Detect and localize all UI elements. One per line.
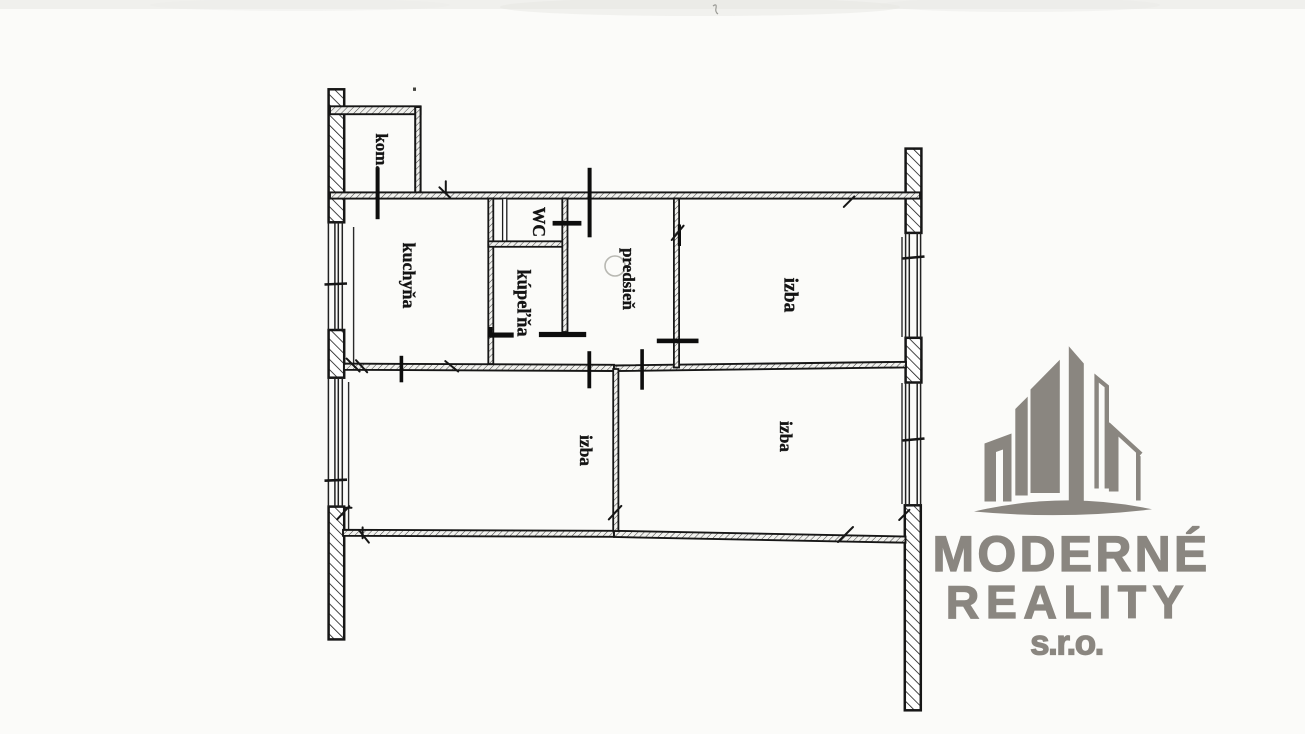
svg-text:kuchyňa: kuchyňa [399, 242, 419, 308]
svg-text:predsieň: predsieň [619, 248, 638, 311]
svg-text:s.r.o.: s.r.o. [1030, 624, 1103, 663]
svg-text:kom.: kom. [372, 133, 391, 169]
svg-text:izba: izba [776, 421, 796, 452]
svg-text:izba: izba [780, 278, 801, 313]
svg-text:WC: WC [529, 207, 549, 237]
svg-text:izba: izba [576, 435, 596, 466]
svg-text:REALITY: REALITY [946, 576, 1190, 628]
svg-text:kúpeľňa: kúpeľňa [513, 269, 533, 336]
svg-text:MODERNÉ: MODERNÉ [933, 526, 1211, 582]
